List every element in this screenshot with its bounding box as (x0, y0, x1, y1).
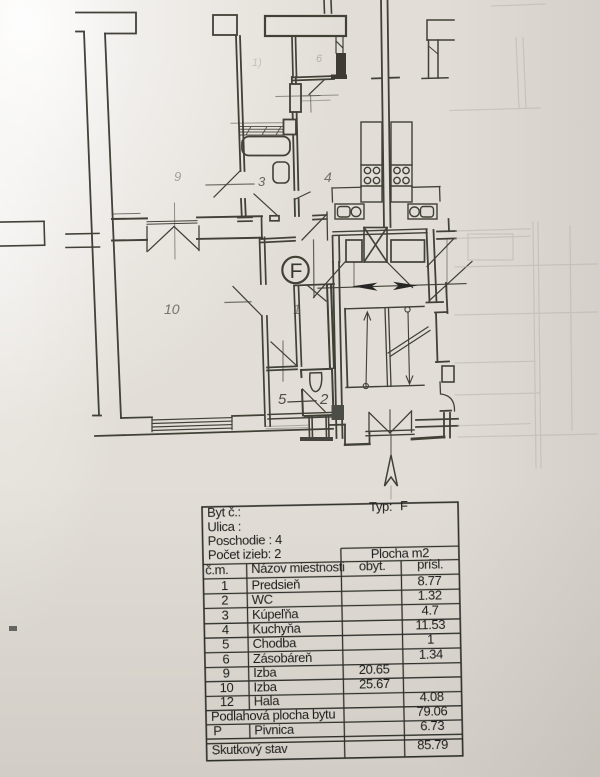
svg-text:20.65: 20.65 (359, 661, 390, 677)
svg-text:4.08: 4.08 (420, 689, 444, 704)
svg-text:Kúpeľňa: Kúpeľňa (252, 606, 300, 622)
svg-text:25.67: 25.67 (359, 676, 390, 692)
svg-text:prísl.: prísl. (417, 556, 443, 571)
svg-text:Zásobáreň: Zásobáreň (253, 650, 312, 666)
svg-text:1.34: 1.34 (419, 646, 443, 661)
svg-text:5: 5 (278, 391, 287, 408)
svg-text:1: 1 (427, 632, 434, 647)
svg-text:1: 1 (221, 578, 228, 593)
svg-text:Názov miestnosti: Názov miestnosti (251, 559, 345, 576)
svg-text:Kuchyňa: Kuchyňa (252, 621, 302, 637)
svg-text:2: 2 (221, 592, 228, 607)
svg-text:6: 6 (316, 53, 323, 65)
svg-text:9: 9 (223, 665, 230, 680)
svg-text:4: 4 (324, 169, 332, 185)
svg-text:4.7: 4.7 (421, 602, 438, 617)
svg-text:Pivnica: Pivnica (254, 722, 295, 738)
svg-text:11.53: 11.53 (415, 617, 445, 633)
svg-text:WC: WC (252, 592, 273, 607)
svg-text:Hala: Hala (254, 693, 281, 709)
svg-text:P: P (213, 723, 222, 738)
svg-text:č.m.: č.m. (205, 562, 228, 577)
svg-text:3: 3 (221, 608, 228, 623)
svg-text:9: 9 (174, 169, 181, 184)
svg-text:Skutkový stav: Skutkový stav (212, 741, 289, 757)
svg-text:85.79: 85.79 (417, 737, 448, 753)
svg-text:10: 10 (219, 680, 233, 695)
svg-text:Predsieň: Predsieň (251, 577, 300, 593)
svg-text:Izba: Izba (253, 665, 278, 680)
svg-text:8.77: 8.77 (417, 573, 441, 588)
svg-text:Chodba: Chodba (252, 635, 297, 651)
svg-text:6: 6 (222, 651, 229, 666)
svg-text:F: F (400, 498, 408, 513)
svg-text:obyt.: obyt. (359, 558, 386, 574)
svg-text:Byt č.:: Byt č.: (207, 504, 241, 520)
svg-text:F: F (290, 260, 303, 283)
svg-text:12: 12 (220, 694, 234, 709)
svg-text:79.06: 79.06 (416, 703, 447, 719)
svg-text:Typ:: Typ: (369, 499, 392, 514)
svg-text:1): 1) (252, 57, 262, 69)
svg-text:6.73: 6.73 (420, 718, 444, 733)
svg-text:2: 2 (319, 391, 329, 408)
svg-text:1.32: 1.32 (418, 587, 442, 602)
svg-text:4: 4 (222, 622, 229, 637)
svg-text:5: 5 (222, 637, 229, 652)
svg-text:10: 10 (164, 301, 180, 317)
svg-text:3: 3 (258, 174, 266, 189)
